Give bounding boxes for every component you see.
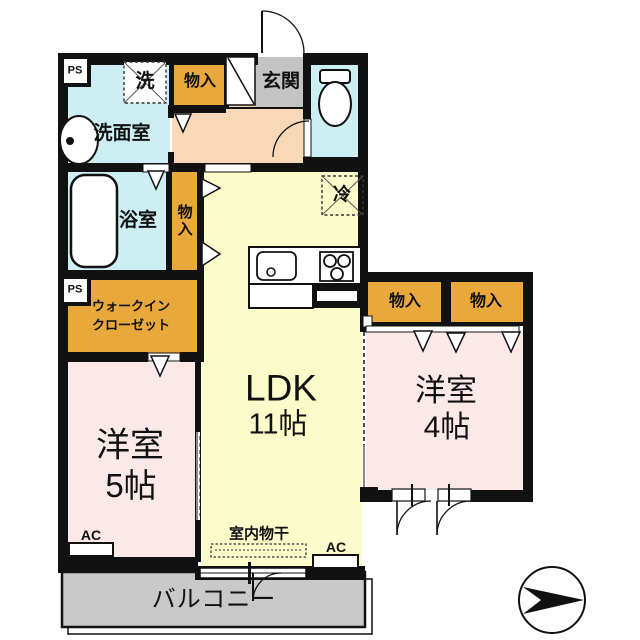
wall-bath-right [166,172,172,270]
bathtub [71,175,117,267]
wall-ldk-se-corner [360,487,378,502]
west4-door-arc-right [437,501,471,535]
ac-left-label: AC [81,527,101,543]
ac-unit-right [313,555,358,568]
stove-burner-1 [324,255,336,267]
ps-top-label: PS [68,65,83,78]
wall-south-west5 [58,557,198,573]
wall-storagetop-bottom [170,105,226,113]
storage-wing-a-label: 物入 [389,293,421,311]
stove-burner-3 [331,268,343,280]
wall-wic-bottom-left [58,352,148,362]
ac-unit-left [69,543,113,556]
kitchen-counter-return [249,284,313,308]
wall-wing-closet-divider [441,282,451,324]
wall-washroom-right [169,57,174,105]
entrance-door-arc [262,11,304,53]
compass [519,567,585,633]
ps-bottom-label: PS [68,284,83,297]
laundry-label: 室内物干 [229,525,289,542]
wall-notch [363,316,372,327]
floor-plan: 洗面室 洗 物入 玄関 PS PS 浴室 物入 冷 ウォークイン クローゼット … [0,0,640,640]
western4-label: 洋室 [415,373,477,409]
west4-door-arc-left [397,501,431,535]
ac-right-label: AC [326,539,346,555]
washroom-label: 洗面室 [93,123,150,145]
wall-washroom-door-a [168,105,174,118]
ldk-size-label: 11帖 [248,408,307,441]
wash-basin [60,116,98,164]
kitchen-stub-slot [317,291,357,301]
west4-double-doors [392,484,471,535]
bathroom-label: 浴室 [119,210,157,232]
wic-label-line1: ウォークイン [92,300,170,315]
western4-size-label: 4帖 [424,411,471,446]
storage-wing-b-label: 物入 [470,293,502,311]
entrance-label: 玄関 [262,71,300,93]
wall-washroom-door-b [168,152,174,163]
wall-toilet-left [303,57,311,119]
toilet-bowl [319,82,351,126]
window-mullion [248,562,251,584]
washer-label: 洗 [135,71,154,93]
stove-burner-2 [338,255,350,267]
sink-drain [267,268,275,276]
ldk-label: LDK [245,368,317,411]
storage-column-label: 物入 [175,204,192,238]
western5-size-label: 5帖 [105,467,156,505]
fridge-label: 冷 [333,185,351,206]
wall-wing-top [358,272,533,282]
storage-top-label: 物入 [184,73,216,91]
balcony-label: バルコニー [152,586,277,614]
wall-wing-south-right [470,490,533,502]
wic-label-line2: クローゼット [92,319,170,334]
toilet-door-gap [304,119,311,157]
ldk-entry-slab [205,164,251,172]
west4-door-slab-right [438,489,471,501]
kitchen-sink [257,252,296,280]
wing-closet-door-slab [366,326,519,332]
wall-wing-right [523,272,533,502]
west4-door-slab-left [392,489,425,501]
basin-faucet [66,137,74,145]
western5-label: 洋室 [96,426,164,465]
wall-wic-bottom-right [180,352,203,362]
